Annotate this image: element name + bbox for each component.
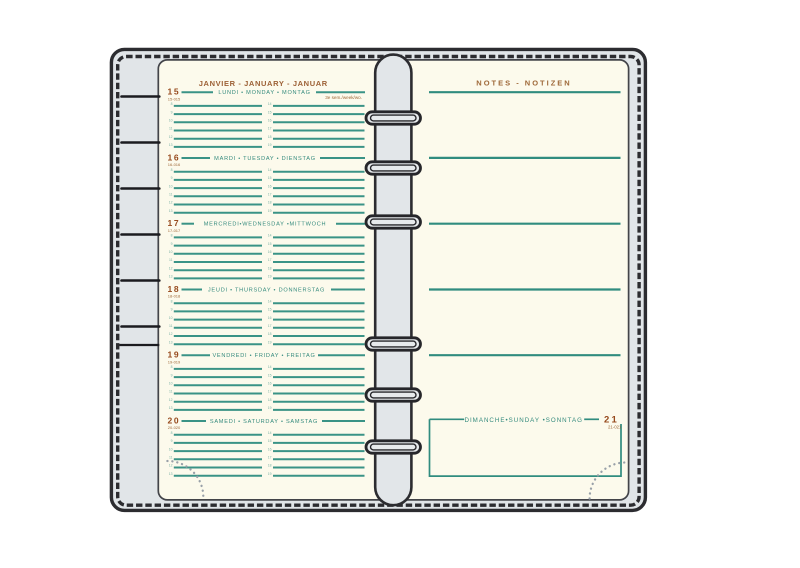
svg-text:LUNDI • MONDAY • MONTAG: LUNDI • MONDAY • MONTAG xyxy=(218,90,310,96)
svg-text:9: 9 xyxy=(171,242,173,246)
svg-text:17-017: 17-017 xyxy=(168,228,181,233)
svg-text:18: 18 xyxy=(268,398,272,402)
svg-text:15: 15 xyxy=(268,176,272,180)
svg-text:18: 18 xyxy=(268,266,272,270)
svg-text:8: 8 xyxy=(171,431,173,435)
svg-text:9: 9 xyxy=(171,176,173,180)
svg-text:8: 8 xyxy=(171,299,173,303)
svg-text:18: 18 xyxy=(268,332,272,336)
svg-text:15-015: 15-015 xyxy=(168,96,181,101)
svg-text:JEUDI • THURSDAY • DONNERSTAG: JEUDI • THURSDAY • DONNERSTAG xyxy=(208,287,325,293)
svg-text:18: 18 xyxy=(268,464,272,468)
svg-text:12: 12 xyxy=(169,266,173,270)
svg-text:8: 8 xyxy=(171,234,173,238)
svg-text:14: 14 xyxy=(268,168,272,172)
svg-text:13: 13 xyxy=(169,472,173,476)
svg-text:10: 10 xyxy=(169,119,173,123)
svg-text:14: 14 xyxy=(268,431,272,435)
svg-text:10: 10 xyxy=(169,250,173,254)
svg-text:15: 15 xyxy=(268,373,272,377)
svg-text:8: 8 xyxy=(171,102,173,106)
svg-text:15: 15 xyxy=(268,439,272,443)
svg-text:16: 16 xyxy=(268,119,272,123)
svg-text:16: 16 xyxy=(268,382,272,386)
svg-text:15: 15 xyxy=(268,110,272,114)
svg-text:11: 11 xyxy=(169,258,173,262)
svg-text:MARDI • TUESDAY • DIENSTAG: MARDI • TUESDAY • DIENSTAG xyxy=(214,156,316,162)
svg-text:9: 9 xyxy=(171,373,173,377)
svg-text:19: 19 xyxy=(268,472,272,476)
svg-text:15: 15 xyxy=(168,87,181,97)
svg-text:12: 12 xyxy=(169,332,173,336)
svg-text:20: 20 xyxy=(168,416,181,426)
svg-text:9: 9 xyxy=(171,308,173,312)
svg-text:10: 10 xyxy=(169,316,173,320)
svg-text:19: 19 xyxy=(268,340,272,344)
svg-text:11: 11 xyxy=(169,127,173,131)
svg-text:17: 17 xyxy=(268,324,272,328)
svg-text:VENDREDI • FRIDAY • FREITAG: VENDREDI • FRIDAY • FREITAG xyxy=(212,353,315,359)
svg-text:17: 17 xyxy=(268,127,272,131)
svg-text:12: 12 xyxy=(169,464,173,468)
svg-text:10: 10 xyxy=(169,382,173,386)
svg-text:8: 8 xyxy=(171,168,173,172)
svg-text:16: 16 xyxy=(268,316,272,320)
svg-text:19: 19 xyxy=(268,275,272,279)
svg-text:17: 17 xyxy=(268,390,272,394)
svg-text:11: 11 xyxy=(169,193,173,197)
svg-text:13: 13 xyxy=(169,143,173,147)
svg-text:11: 11 xyxy=(169,324,173,328)
svg-text:17: 17 xyxy=(268,193,272,197)
svg-text:16: 16 xyxy=(268,447,272,451)
svg-text:19-019: 19-019 xyxy=(168,359,181,364)
svg-text:17: 17 xyxy=(268,456,272,460)
svg-text:9: 9 xyxy=(171,439,173,443)
svg-text:18: 18 xyxy=(168,284,181,294)
svg-text:14: 14 xyxy=(268,299,272,303)
svg-text:NOTES - NOTIZEN: NOTES - NOTIZEN xyxy=(476,79,571,88)
svg-text:13: 13 xyxy=(169,406,173,410)
svg-text:19: 19 xyxy=(268,209,272,213)
svg-text:DIMANCHE•SUNDAY •SONNTAG: DIMANCHE•SUNDAY •SONNTAG xyxy=(464,417,582,424)
svg-text:16-016: 16-016 xyxy=(168,162,181,167)
svg-text:14: 14 xyxy=(268,102,272,106)
svg-text:18: 18 xyxy=(268,201,272,205)
svg-text:12: 12 xyxy=(169,201,173,205)
svg-text:21-021: 21-021 xyxy=(608,425,622,430)
svg-text:13: 13 xyxy=(169,275,173,279)
svg-text:13: 13 xyxy=(169,340,173,344)
svg-text:17: 17 xyxy=(268,258,272,262)
svg-text:19: 19 xyxy=(268,143,272,147)
svg-text:16: 16 xyxy=(268,250,272,254)
svg-text:9: 9 xyxy=(171,110,173,114)
svg-text:15: 15 xyxy=(268,308,272,312)
svg-text:14: 14 xyxy=(268,365,272,369)
svg-text:16: 16 xyxy=(268,184,272,188)
svg-text:19: 19 xyxy=(268,406,272,410)
svg-text:18-018: 18-018 xyxy=(168,294,181,299)
svg-text:8: 8 xyxy=(171,365,173,369)
svg-text:14: 14 xyxy=(268,234,272,238)
svg-text:13: 13 xyxy=(169,209,173,213)
svg-text:SAMEDI • SATURDAY • SAMSTAG: SAMEDI • SATURDAY • SAMSTAG xyxy=(210,419,318,425)
svg-text:11: 11 xyxy=(169,390,173,394)
svg-text:15: 15 xyxy=(268,242,272,246)
svg-text:11: 11 xyxy=(169,456,173,460)
svg-text:10: 10 xyxy=(169,447,173,451)
svg-text:17: 17 xyxy=(168,218,181,228)
svg-text:19: 19 xyxy=(168,350,181,360)
svg-text:MERCREDI•WEDNESDAY •MITTWOCH: MERCREDI•WEDNESDAY •MITTWOCH xyxy=(204,222,327,228)
svg-text:12: 12 xyxy=(169,135,173,139)
svg-text:3e sem./week/wo.: 3e sem./week/wo. xyxy=(325,95,362,100)
svg-text:18: 18 xyxy=(268,135,272,139)
svg-text:JANVIER - JANUARY - JANUAR: JANVIER - JANUARY - JANUAR xyxy=(199,79,328,88)
svg-text:12: 12 xyxy=(169,398,173,402)
svg-text:16: 16 xyxy=(168,153,181,163)
svg-text:10: 10 xyxy=(169,184,173,188)
svg-text:20-020: 20-020 xyxy=(168,425,181,430)
